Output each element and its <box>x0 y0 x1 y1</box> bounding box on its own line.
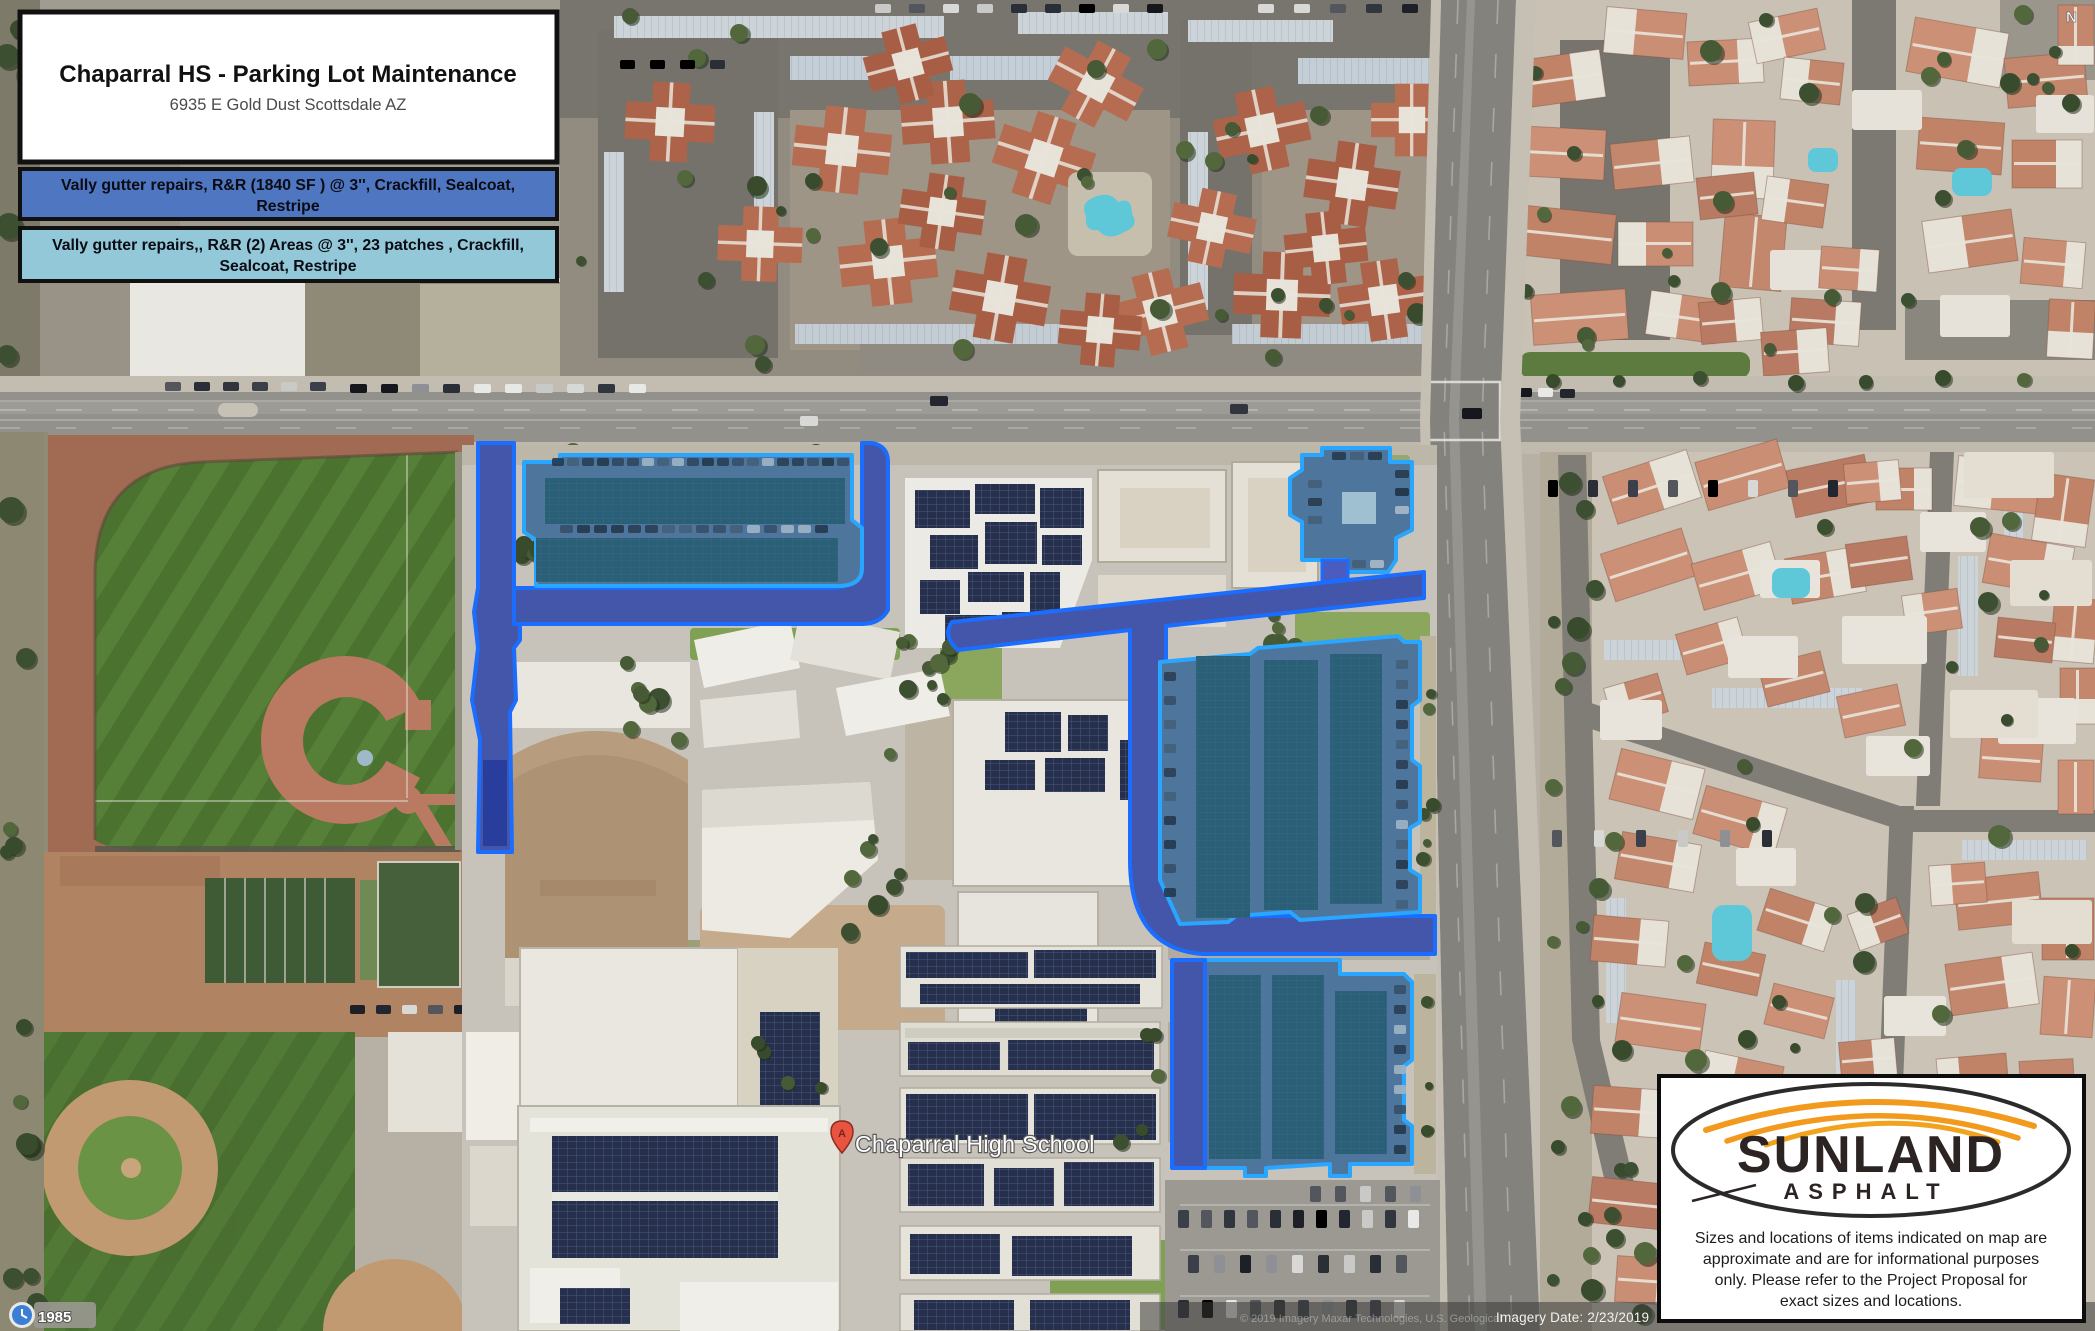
svg-text:Vally gutter repairs, R&R (184: Vally gutter repairs, R&R (1840 SF ) @ 3… <box>61 177 515 194</box>
svg-text:SUNLAND: SUNLAND <box>1737 1126 2005 1184</box>
svg-text:only. Please refer to the Proj: only. Please refer to the Project Propos… <box>1715 1272 2028 1289</box>
svg-text:Chaparral HS - Parking Lot Mai: Chaparral HS - Parking Lot Maintenance <box>59 61 516 88</box>
svg-text:Vally gutter repairs,, R&R (2): Vally gutter repairs,, R&R (2) Areas @ 3… <box>52 237 524 254</box>
svg-text:approximate and are for inform: approximate and are for informational pu… <box>1703 1251 2039 1268</box>
svg-text:Restripe: Restripe <box>256 198 319 215</box>
svg-text:Sealcoat, Restripe: Sealcoat, Restripe <box>220 258 357 275</box>
svg-text:Sizes and locations of items i: Sizes and locations of items indicated o… <box>1695 1230 2047 1247</box>
svg-text:N: N <box>2066 9 2077 26</box>
svg-text:1985: 1985 <box>38 1309 71 1326</box>
svg-text:Imagery Date: 2/23/2019: Imagery Date: 2/23/2019 <box>1496 1310 1649 1325</box>
svg-text:A: A <box>838 1128 846 1140</box>
svg-text:ASPHALT: ASPHALT <box>1783 1179 1948 1204</box>
svg-text:exact sizes and locations.: exact sizes and locations. <box>1780 1293 1962 1310</box>
svg-text:Chaparral High School: Chaparral High School <box>855 1131 1095 1157</box>
svg-text:© 2019 Imagery Maxar Technol: © 2019 Imagery Maxar Technologies, U.S. … <box>1240 1313 1502 1325</box>
svg-text:6935 E Gold Dust Scottsdale AZ: 6935 E Gold Dust Scottsdale AZ <box>170 96 407 114</box>
